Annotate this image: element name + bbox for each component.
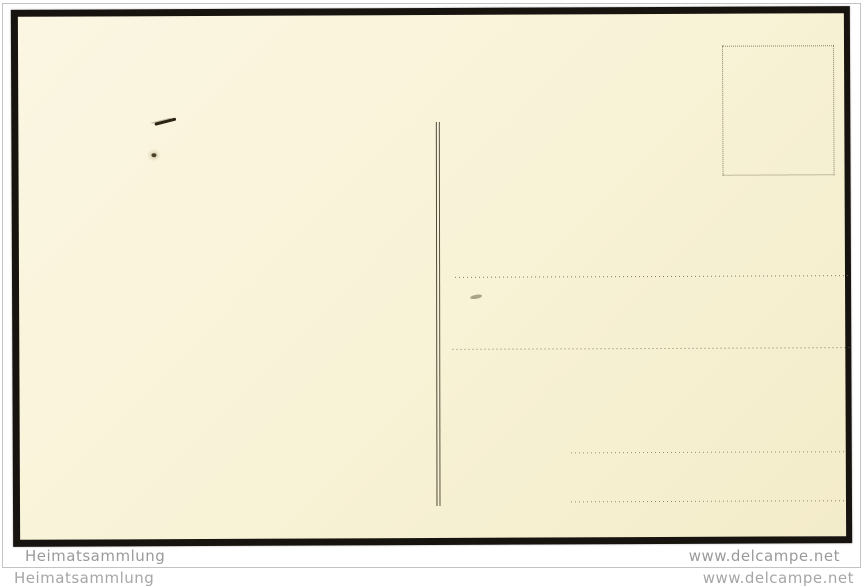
postcard-scan-photo [11, 6, 852, 547]
smudge-mark [470, 294, 483, 300]
message-address-divider [436, 122, 441, 506]
address-line [455, 274, 851, 278]
address-line [571, 499, 844, 502]
listing-page: Heimatsammlung www.delcampe.net Heimatsa… [0, 0, 868, 587]
watermark-heimatsammlung-outer: Heimatsammlung [14, 571, 154, 586]
ink-dot-mark [151, 153, 156, 157]
address-line [452, 346, 851, 350]
postcard-back [18, 13, 846, 540]
watermark-delcampe-outer: www.delcampe.net [703, 571, 854, 586]
scratch-mark [154, 117, 176, 125]
stamp-box [722, 45, 835, 175]
watermark-heimatsammlung-inner: Heimatsammlung [25, 549, 165, 564]
address-line [571, 450, 846, 453]
watermark-delcampe-inner: www.delcampe.net [689, 549, 840, 564]
